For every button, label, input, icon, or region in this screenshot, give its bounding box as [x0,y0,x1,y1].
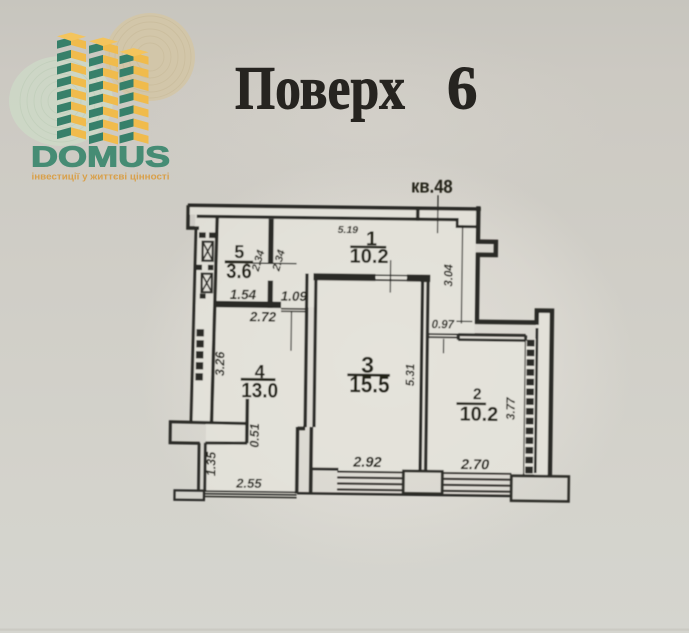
svg-text:1.09: 1.09 [281,288,308,303]
svg-text:2.92: 2.92 [352,455,381,471]
svg-text:кв.48: кв.48 [411,176,453,197]
svg-text:2.55: 2.55 [235,476,262,491]
svg-text:1.54: 1.54 [230,287,257,302]
svg-text:3.26: 3.26 [213,351,227,377]
svg-text:10.2: 10.2 [460,404,499,427]
svg-text:2.70: 2.70 [460,457,489,473]
svg-text:6: 6 [447,56,478,123]
svg-text:13.0: 13.0 [241,379,278,402]
svg-text:інвестиції у життєві цінності: інвестиції у життєві цінності [32,172,170,182]
svg-text:1.35: 1.35 [204,451,218,477]
svg-text:0.51: 0.51 [248,423,262,448]
svg-text:2.72: 2.72 [249,309,277,324]
svg-text:2: 2 [473,386,482,403]
svg-text:DOMUS: DOMUS [31,142,170,174]
svg-text:3.6: 3.6 [226,260,252,283]
svg-text:0.97: 0.97 [432,319,455,331]
svg-text:3.77: 3.77 [506,397,518,420]
svg-text:3.04: 3.04 [443,264,455,287]
svg-text:5: 5 [234,242,244,262]
svg-text:10.2: 10.2 [349,245,388,268]
svg-text:5.19: 5.19 [338,224,359,236]
svg-text:5.31: 5.31 [405,364,417,387]
svg-text:Поверх: Поверх [235,56,405,123]
